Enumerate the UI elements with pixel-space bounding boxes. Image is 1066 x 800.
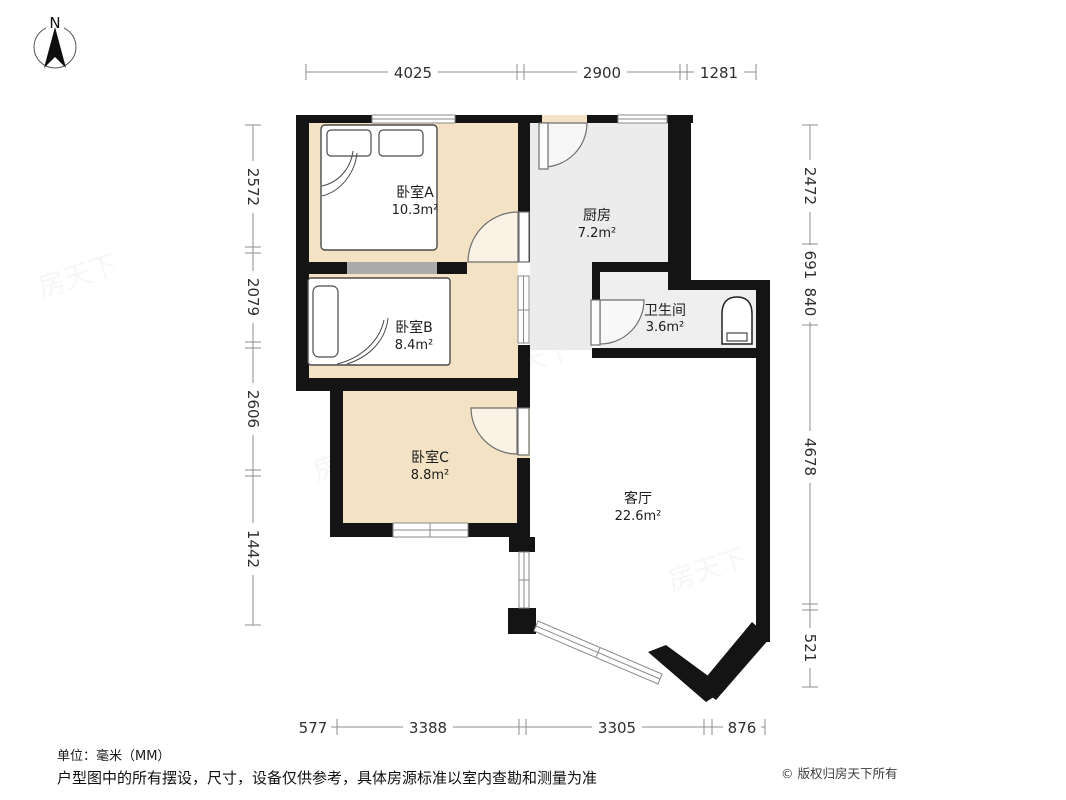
room-label-kitchen: 厨房 (583, 208, 611, 224)
dimension-left: 2572 2079 2606 1442 (244, 125, 262, 625)
dimension-right: 2472 691 840 4678 521 (801, 125, 819, 687)
dim-bottom-1: 577 (299, 719, 328, 737)
dim-top-1: 4025 (394, 64, 432, 82)
unit-note: 单位：毫米（MM） (57, 745, 170, 764)
wall-segment-light (347, 262, 437, 274)
room-area-bedroom-c: 8.8m² (411, 468, 450, 483)
room-label-living-room: 客厅 (624, 490, 652, 507)
dim-right-3: 840 (801, 288, 819, 317)
room-area-bathroom: 3.6m² (646, 320, 685, 335)
wall-segment (592, 262, 668, 272)
compass: N (34, 14, 76, 68)
floorplan-page: 房天下 房天下 房天下 房天下 房天下 N 4025 2900 1281 (0, 0, 1066, 800)
room-floor-bathroom-upper (600, 272, 668, 290)
wall-segment (587, 115, 618, 123)
window-bedroom-c-bottom (393, 523, 468, 537)
wall-segment (517, 391, 530, 408)
window-bay-left (519, 552, 529, 608)
wall-segment (509, 537, 535, 552)
wall-segment (309, 262, 347, 274)
wall-segment (592, 262, 600, 300)
watermark-text: 房天下 (664, 543, 751, 598)
room-label-bathroom: 卫生间 (644, 303, 686, 319)
door-panel-entry (539, 123, 548, 169)
wall-segment (508, 608, 536, 634)
disclaimer-text: 户型图中的所有摆设，尺寸，设备仅供参考，具体房源标准以室内查勘和测量为准 (57, 767, 597, 788)
dim-bottom-4: 876 (728, 719, 757, 737)
room-area-kitchen: 7.2m² (578, 226, 617, 241)
dim-left-1: 2572 (244, 168, 262, 206)
door-panel-bedroom-c (518, 408, 529, 455)
bedroom-a-door-gap (467, 262, 518, 274)
dim-left-2: 2079 (244, 278, 262, 316)
dim-bottom-2: 3388 (409, 719, 447, 737)
wall-segment (517, 458, 530, 537)
room-area-bedroom-b: 8.4m² (395, 338, 434, 353)
watermark-text: 房天下 (35, 250, 122, 305)
window-bedroom-a-top (372, 115, 455, 123)
wall-segment (296, 115, 309, 391)
wall-segment (330, 378, 343, 537)
north-arrow-icon (44, 27, 66, 68)
dim-left-4: 1442 (244, 530, 262, 568)
door-panel-bathroom (591, 300, 600, 345)
dim-top-3: 1281 (700, 64, 738, 82)
dim-right-4: 4678 (801, 438, 819, 476)
floorplan-canvas: 房天下 房天下 房天下 房天下 房天下 N 4025 2900 1281 (0, 0, 1066, 800)
wall-segment (437, 262, 467, 274)
window-kitchen-top (618, 115, 667, 123)
pillow (313, 286, 338, 357)
dim-right-5: 521 (801, 634, 819, 663)
room-area-living-room: 22.6m² (615, 509, 662, 524)
dimension-bottom: 577 3388 3305 876 (295, 718, 765, 737)
wall-segment (756, 280, 770, 642)
dim-top-2: 2900 (583, 64, 621, 82)
wall-segment (668, 115, 691, 290)
door-panel-bedroom-a (519, 212, 529, 262)
toilet (722, 297, 752, 344)
entry-door-gap (542, 115, 587, 123)
window-bedroom-b-slider (518, 276, 529, 343)
pillow (379, 130, 423, 156)
copyright-text: © 版权归房天下所有 (781, 763, 897, 782)
dim-right-2: 691 (801, 251, 819, 280)
room-label-bedroom-c: 卧室C (411, 449, 449, 466)
dim-bottom-3: 3305 (598, 719, 636, 737)
room-label-bedroom-a: 卧室A (396, 184, 434, 201)
wall-segment-diagonal (698, 622, 770, 700)
hall-floor (530, 262, 592, 350)
room-area-bedroom-a: 10.3m² (392, 203, 439, 218)
dim-right-1: 2472 (801, 167, 819, 205)
wall-segment (330, 523, 393, 537)
pillow (327, 130, 371, 156)
window-bay-diagonal (534, 621, 662, 684)
wall-segment (592, 348, 757, 358)
dimension-top: 4025 2900 1281 (306, 63, 756, 82)
dim-left-3: 2606 (244, 390, 262, 428)
room-label-bedroom-b: 卧室B (395, 319, 433, 336)
